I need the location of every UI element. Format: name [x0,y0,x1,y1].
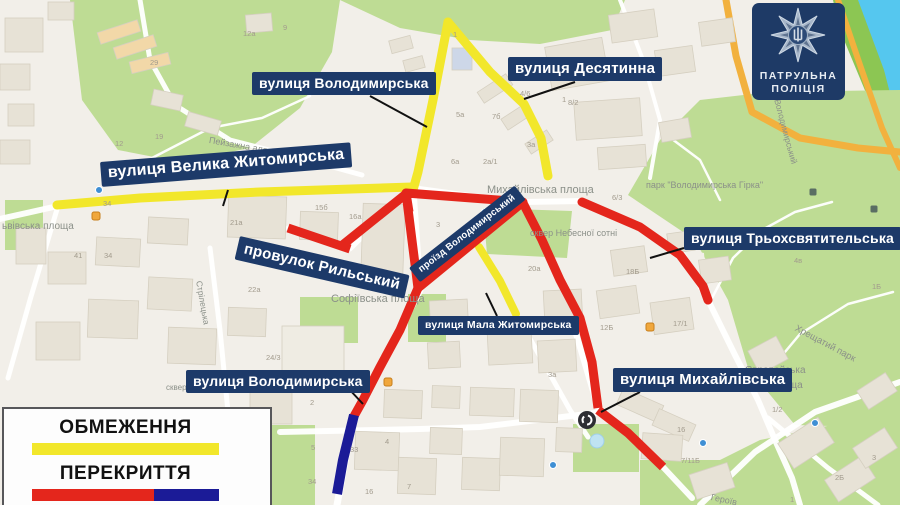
park-poi-icon [810,189,817,196]
pond [590,434,604,448]
transit-stop-icon [482,209,489,216]
legend-closure-swatch [32,489,219,501]
transit-stop-icon [812,420,819,427]
legend-closure-blue-segment [154,489,219,501]
poi-icon [646,323,654,331]
badge-line2: ПОЛІЦІЯ [752,83,845,96]
legend-restriction-label: ОБМЕЖЕННЯ [32,417,219,439]
legend-closure-label: ПЕРЕКРИТТЯ [32,463,219,485]
poi-icon [559,319,567,327]
transit-stop-icon [96,187,103,194]
badge-line1: ПАТРУЛЬНА [752,70,845,83]
poi-icon [92,212,100,220]
poi-icon [384,378,392,386]
legend: ОБМЕЖЕННЯ ПЕРЕКРИТТЯ [2,407,272,505]
map-infographic: ьвівська площаПейзажна алеяМихайлівська … [0,0,900,505]
park-poi-icon [871,206,878,213]
legend-closure-red-segment [32,489,154,501]
police-badge: ПАТРУЛЬНА ПОЛІЦІЯ [752,3,845,100]
transit-stop-icon [550,462,557,469]
police-star-icon [752,3,845,65]
roundabout-icon [578,411,596,429]
transit-stop-icon [700,440,707,447]
legend-restriction-swatch [32,443,219,455]
